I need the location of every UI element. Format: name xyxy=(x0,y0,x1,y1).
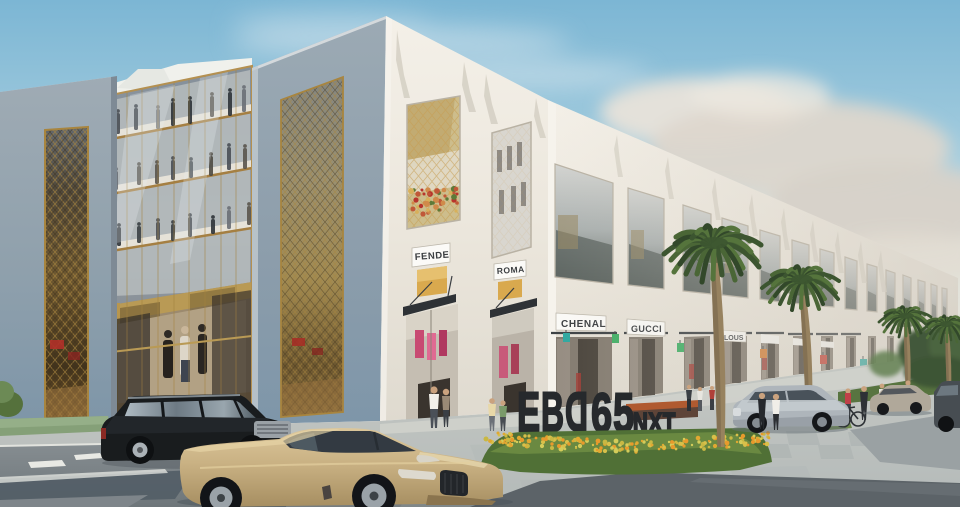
svg-text:ROMA: ROMA xyxy=(496,264,525,276)
